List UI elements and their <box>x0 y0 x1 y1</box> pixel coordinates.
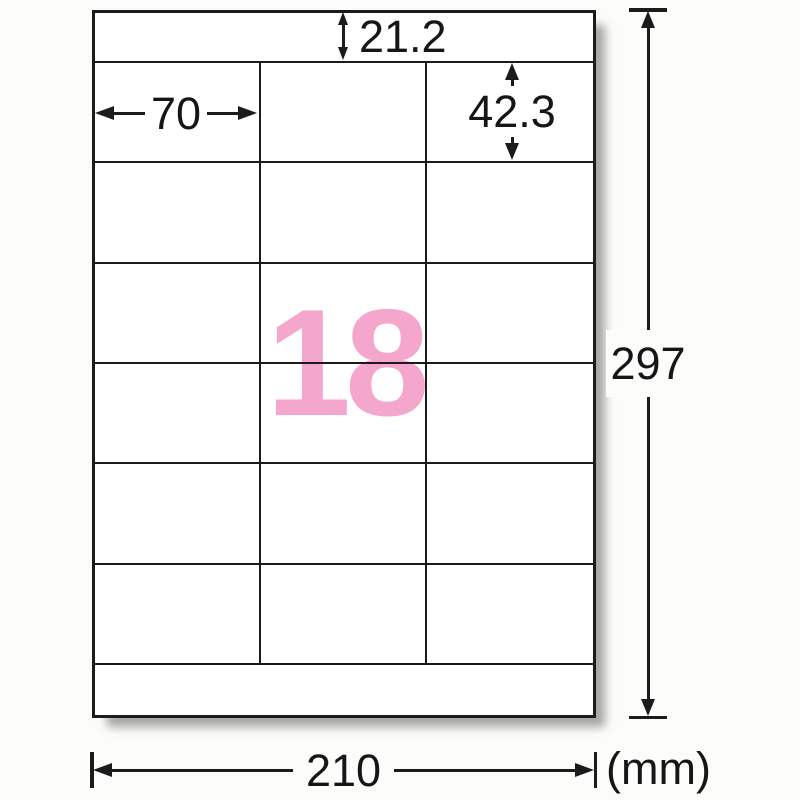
arrow-right-icon <box>575 763 594 777</box>
label-cell <box>95 63 261 163</box>
page-width-value: 210 <box>293 748 394 793</box>
arrow-down-icon <box>641 699 655 716</box>
label-cell <box>427 163 593 263</box>
label-cell <box>95 264 261 364</box>
unit-label: (mm) <box>606 746 711 791</box>
dimension-page-height: 297 <box>629 8 667 719</box>
label-cell <box>95 464 261 564</box>
label-sheet-dimension-diagram: 18 21.2 70 42.3 297 <box>0 0 800 800</box>
label-sheet: 18 <box>92 10 596 718</box>
arrow-left-icon <box>93 763 112 777</box>
label-cell <box>427 63 593 163</box>
label-cell <box>427 464 593 564</box>
label-cell <box>261 264 427 364</box>
label-cell <box>427 364 593 464</box>
arrow-up-icon <box>641 11 655 28</box>
label-cell <box>261 163 427 263</box>
label-cell <box>427 565 593 665</box>
label-cell <box>95 364 261 464</box>
dimension-end-tick <box>594 752 598 788</box>
dimension-page-width: 210 <box>90 752 597 788</box>
bottom-margin-band <box>95 665 593 715</box>
label-cell <box>261 63 427 163</box>
top-margin-band <box>95 13 593 63</box>
label-cell <box>261 565 427 665</box>
dimension-end-tick <box>629 716 667 720</box>
label-cell <box>427 264 593 364</box>
label-cell <box>261 464 427 564</box>
label-cell <box>261 364 427 464</box>
label-cell <box>95 163 261 263</box>
page-height-value: 297 <box>606 330 689 397</box>
label-cell <box>95 565 261 665</box>
